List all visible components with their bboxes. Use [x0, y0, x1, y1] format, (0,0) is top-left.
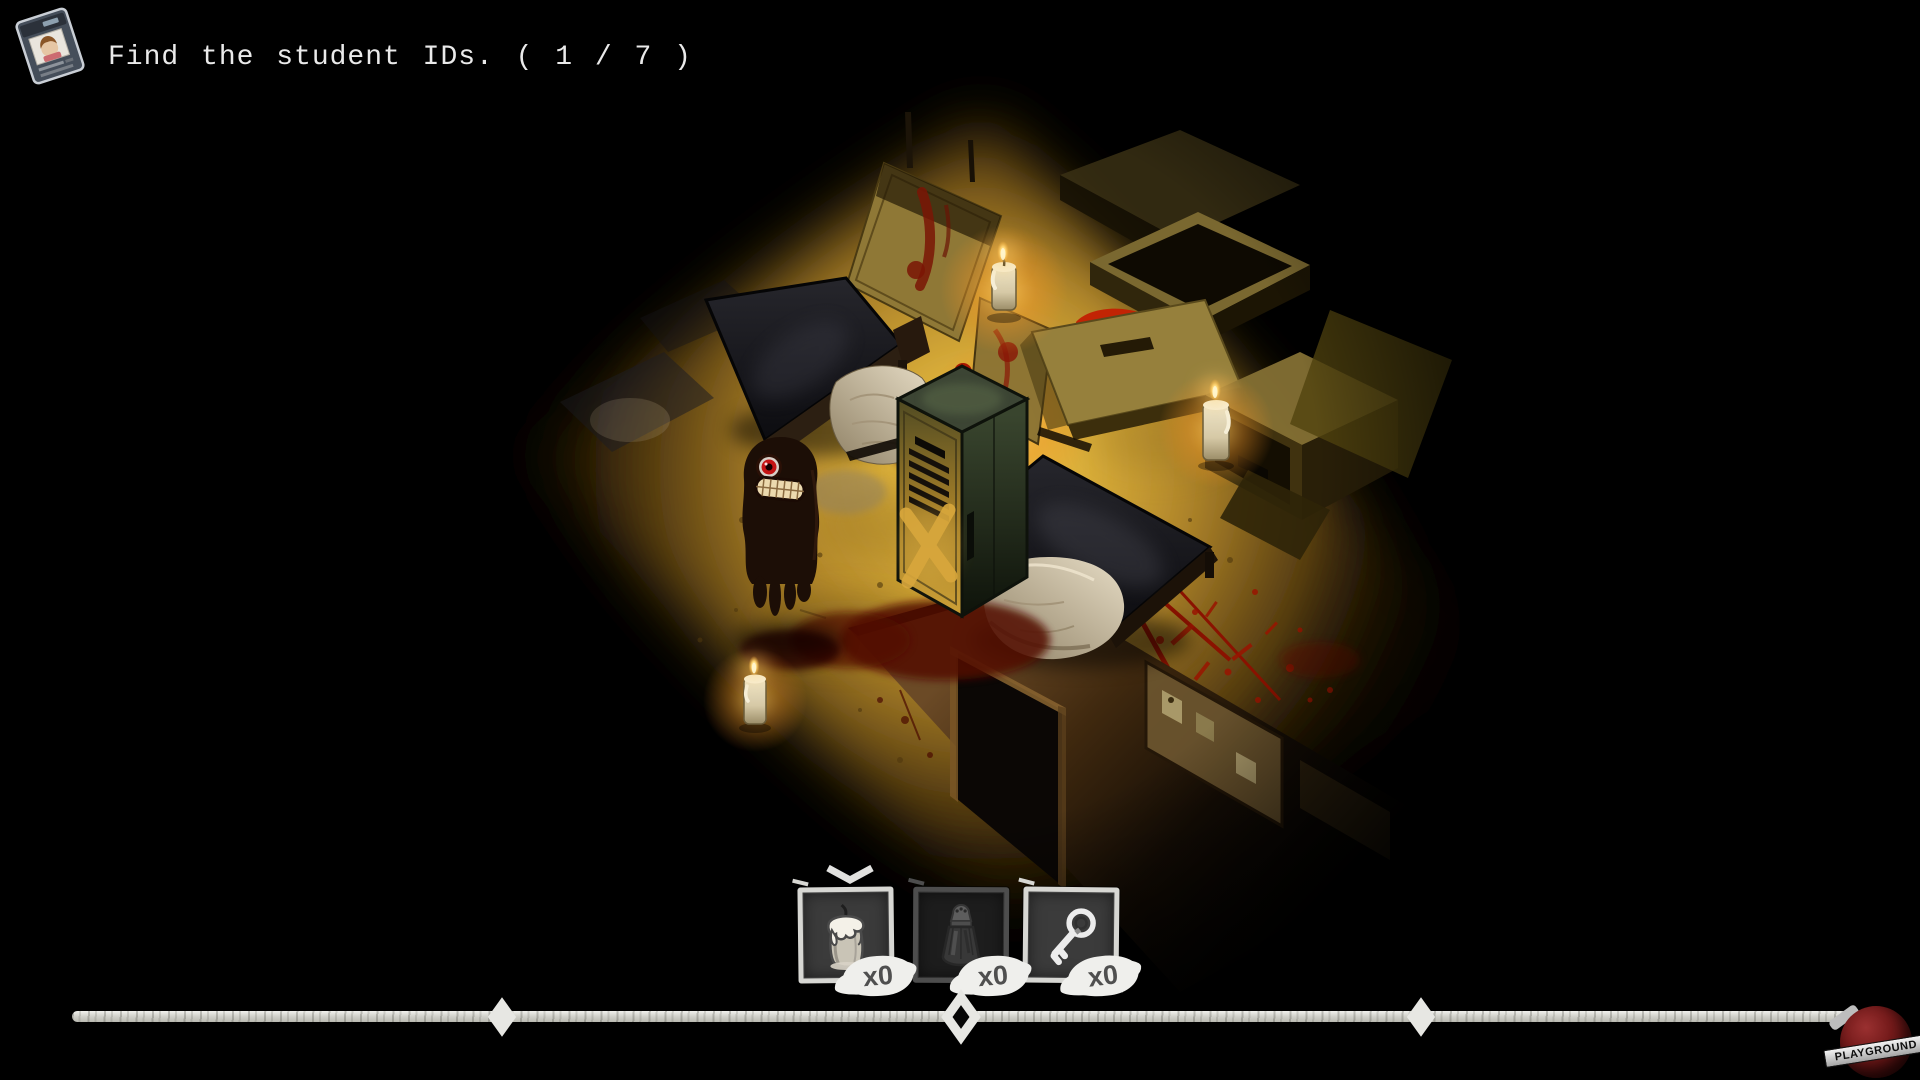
item-count: x0 [862, 959, 895, 993]
game-viewport: Find the student IDs. ( 1 / 7 ) [0, 0, 1920, 1080]
inventory-hotbar: x0 x0 x0 [798, 863, 1138, 1008]
timeline-marker-center-hole [953, 1005, 970, 1029]
item-count: x0 [977, 959, 1010, 993]
selected-slot-indicator [823, 863, 877, 887]
quest-objective-text: Find the student IDs. ( 1 / 7 ) [108, 42, 692, 73]
playground-watermark: PLAYGROUND [1828, 1000, 1920, 1080]
item-count: x0 [1086, 959, 1120, 993]
